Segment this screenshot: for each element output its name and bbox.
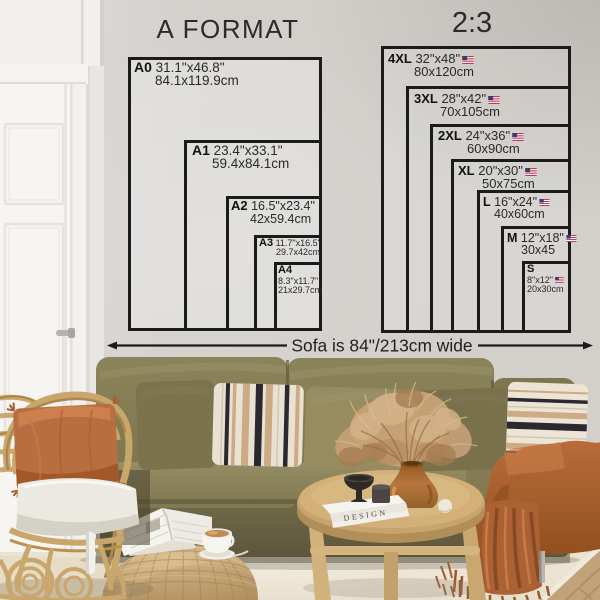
svg-text:Sofa is 84"/213cm wide: Sofa is 84"/213cm wide (291, 336, 472, 356)
